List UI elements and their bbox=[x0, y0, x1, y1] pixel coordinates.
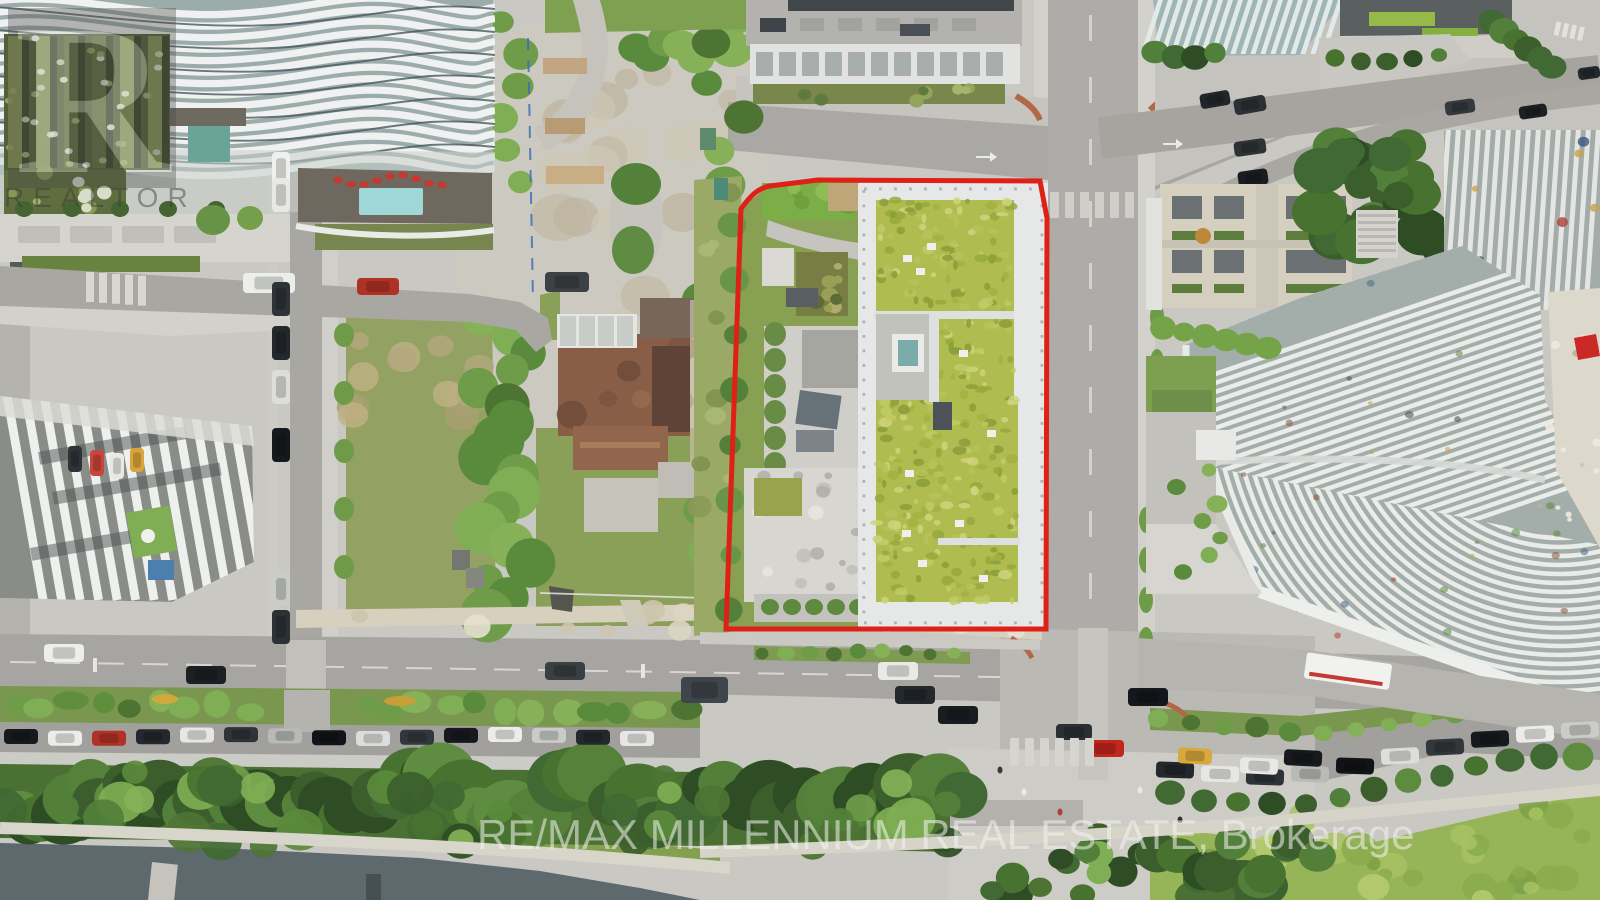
svg-text:RE/MAX MILLENNIUM REAL ESTATE,: RE/MAX MILLENNIUM REAL ESTATE, Brokerage bbox=[477, 811, 1414, 858]
svg-text:REALTOR: REALTOR bbox=[4, 182, 197, 213]
